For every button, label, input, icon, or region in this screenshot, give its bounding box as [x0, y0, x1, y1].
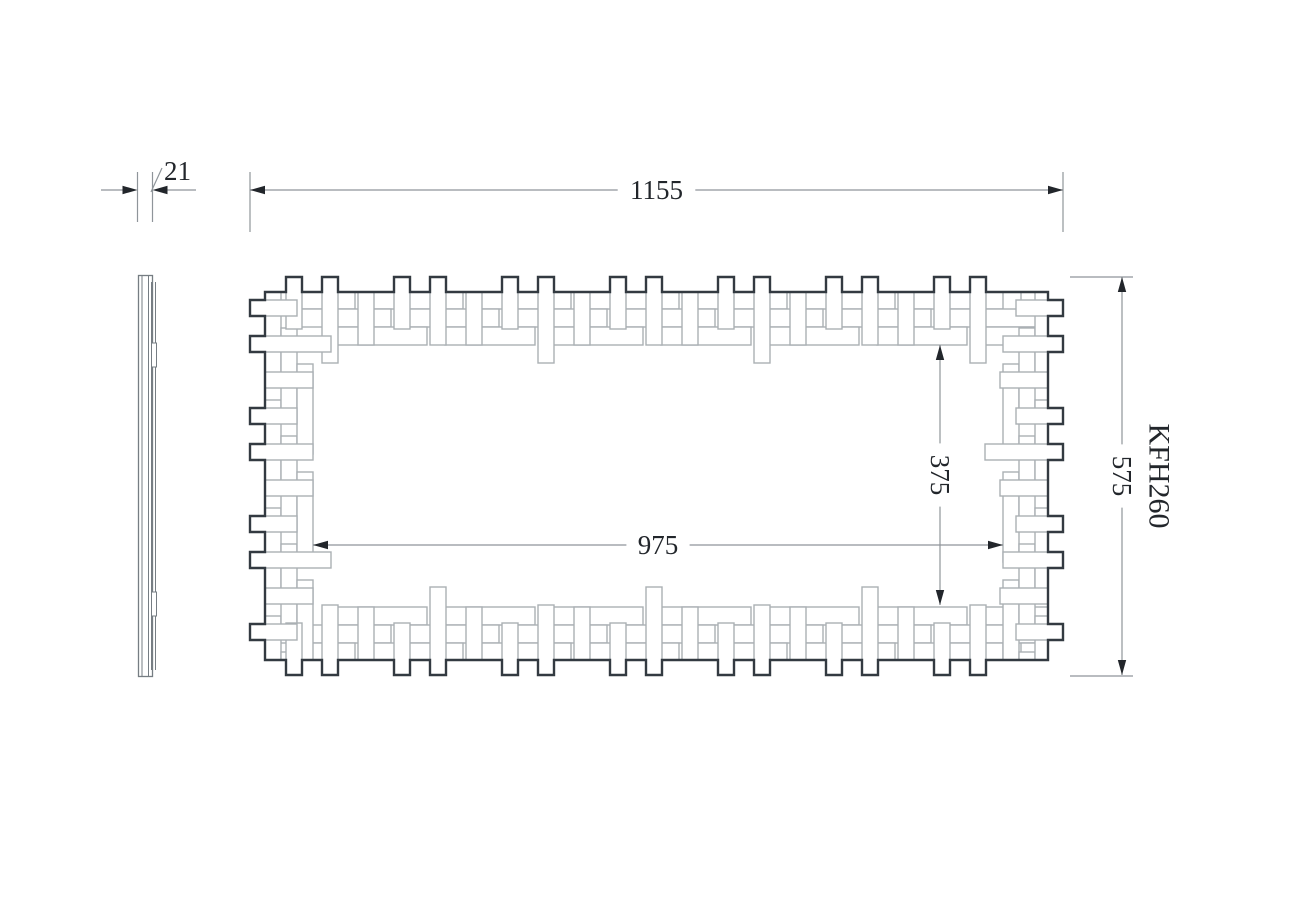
dim-overall-height-value: 575	[1107, 456, 1137, 497]
model-number-text: KFH260	[1143, 423, 1176, 528]
dim-overall-width-value: 1155	[630, 175, 683, 205]
drawing-sheet: 115557597537521KFH260	[0, 0, 1300, 919]
dim-thickness-value: 21	[164, 156, 191, 186]
model-number-label: KFH260	[1143, 423, 1176, 528]
dimension-opening-height: 375	[925, 345, 955, 605]
cad-drawing-canvas: 115557597537521KFH260	[0, 0, 1300, 919]
dimension-overall-height: 575	[1070, 277, 1137, 676]
dimension-overall-width: 1155	[250, 172, 1063, 232]
dimension-opening-width: 975	[313, 530, 1003, 560]
dimension-thickness: 21	[101, 156, 196, 222]
dim-opening-height-value: 375	[925, 455, 955, 496]
dim-opening-width-value: 975	[638, 530, 679, 560]
side-profile-view	[139, 276, 157, 677]
